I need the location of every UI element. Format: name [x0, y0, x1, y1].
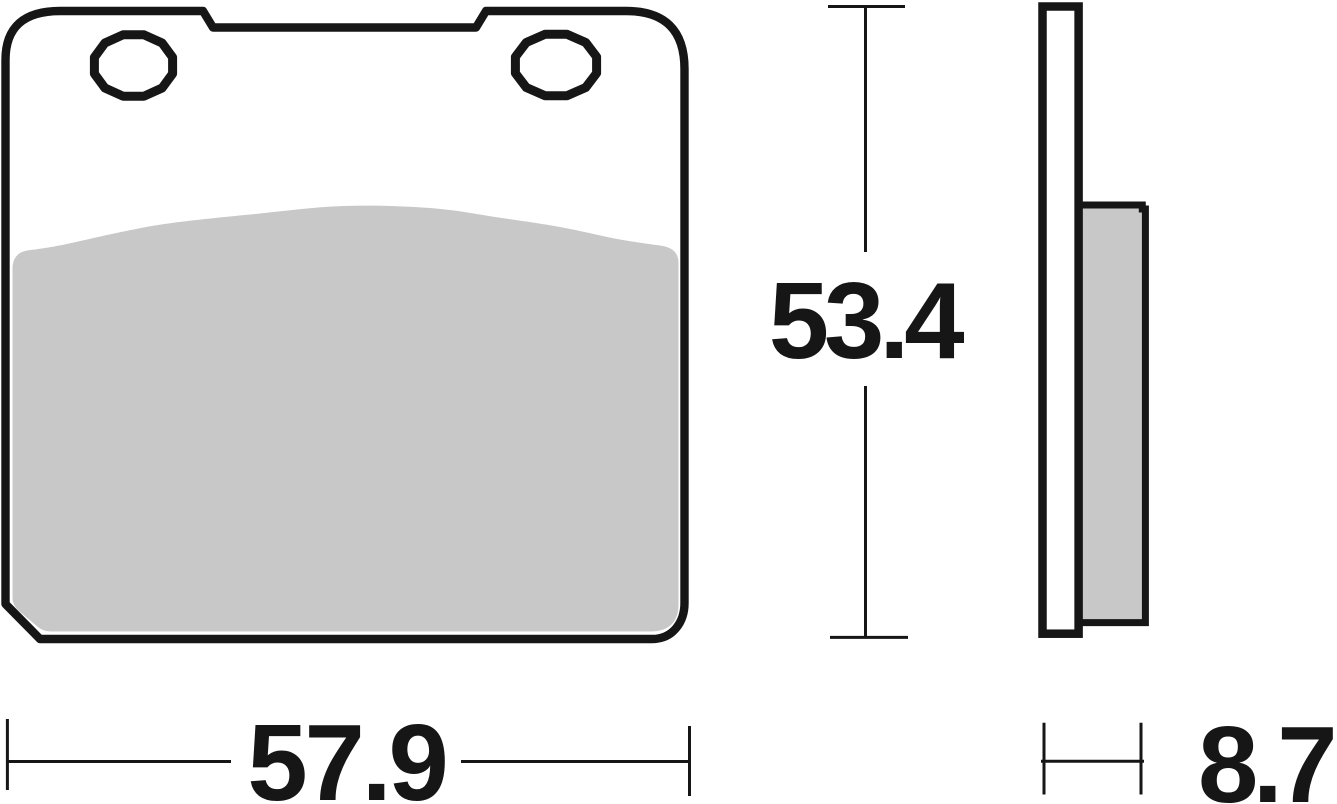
svg-text:53.4: 53.4 — [769, 260, 964, 381]
svg-text:57.9: 57.9 — [247, 702, 445, 804]
svg-text:8.7: 8.7 — [1198, 704, 1333, 804]
